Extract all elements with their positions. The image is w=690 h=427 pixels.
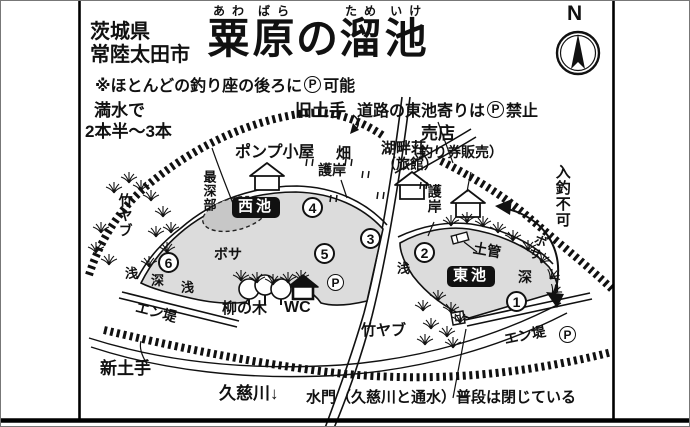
no-entry-label: 入釣不可 (553, 164, 570, 228)
compass-icon (557, 32, 599, 74)
shop-sub-label: （釣り券販売） (405, 145, 503, 161)
full-water-note-line1: 満水で (94, 101, 145, 120)
deep-west: 深 (151, 274, 164, 289)
river-label: 久慈川 ↓ (219, 384, 279, 403)
down-arrow-icon: ↓ (270, 384, 279, 403)
wc-label: WC (284, 299, 311, 317)
parking-icon: P (304, 76, 321, 93)
deep-east: 深 (518, 270, 532, 286)
title-ruby: ばら (251, 2, 296, 16)
title-char: 原 (253, 16, 295, 62)
spot-5: 5 (314, 243, 335, 264)
page-title: あわ粟 ばら原 の ため溜 いけ池 (206, 2, 428, 62)
pump-hut-label: ポンプ小屋 (235, 144, 315, 162)
spot-3: 3 (360, 228, 381, 249)
spot-4: 4 (302, 197, 323, 218)
field-label: 畑 (336, 146, 351, 163)
west-pond-badge: 西池 (232, 197, 280, 218)
shallow-west-1: 浅 (125, 267, 138, 282)
parking-icon: P (487, 101, 504, 118)
revetment-road-label: 護岸 (426, 184, 442, 214)
title-char: 粟 (208, 16, 250, 62)
inn-icon (395, 172, 429, 199)
willow-label: 柳の木 (222, 301, 267, 318)
road-parking-note: 道路の東池寄りは P 禁止 (357, 97, 538, 121)
pump-hut-icon (250, 163, 284, 190)
title-char: 溜 (340, 16, 382, 62)
spot-1: 1 (506, 291, 527, 312)
revetment-top-label: 護岸 (318, 163, 346, 179)
title-ruby: ため (338, 2, 383, 16)
full-water-note-line2: 2本半～3本 (85, 122, 172, 141)
shallow-east: 浅 (397, 262, 410, 277)
new-embankment-label: 新土手 (100, 359, 151, 378)
title-char: の (296, 16, 338, 62)
city-label: 常陸太田市 (90, 38, 190, 67)
bamboo-left-label: 竹ヤブ (117, 193, 133, 238)
brush-west-label: ボサ (214, 247, 242, 263)
parking-note: ※ほとんどの釣り座の後ろに P 可能 (95, 72, 355, 96)
old-embankment-label: 旧土手 (295, 101, 346, 120)
spot-6: 6 (158, 252, 179, 273)
bamboo-bottom-label: 竹ヤブ (361, 323, 406, 340)
shallow-west-2: 浅 (181, 281, 194, 296)
title-char: 池 (385, 16, 427, 62)
shop-label: 売店 (421, 124, 455, 143)
parking-icon-east: P (559, 326, 576, 343)
compass-north-label: N (567, 2, 582, 26)
shop-icon (451, 190, 485, 217)
title-ruby: あわ (206, 2, 251, 16)
sluice-note-label: 水門（久慈川と通水）普段は閉じている (306, 390, 576, 407)
title-ruby: いけ (383, 2, 428, 16)
spot-2: 2 (414, 242, 435, 263)
deepest-point-label: 最深部 (201, 170, 216, 212)
east-pond-badge: 東池 (447, 266, 495, 287)
fishing-pond-map: 茨城県 常陸太田市 あわ粟 ばら原 の ため溜 いけ池 ※ほとんどの釣り座の後ろ… (0, 0, 690, 427)
parking-icon-wc: P (327, 274, 344, 291)
